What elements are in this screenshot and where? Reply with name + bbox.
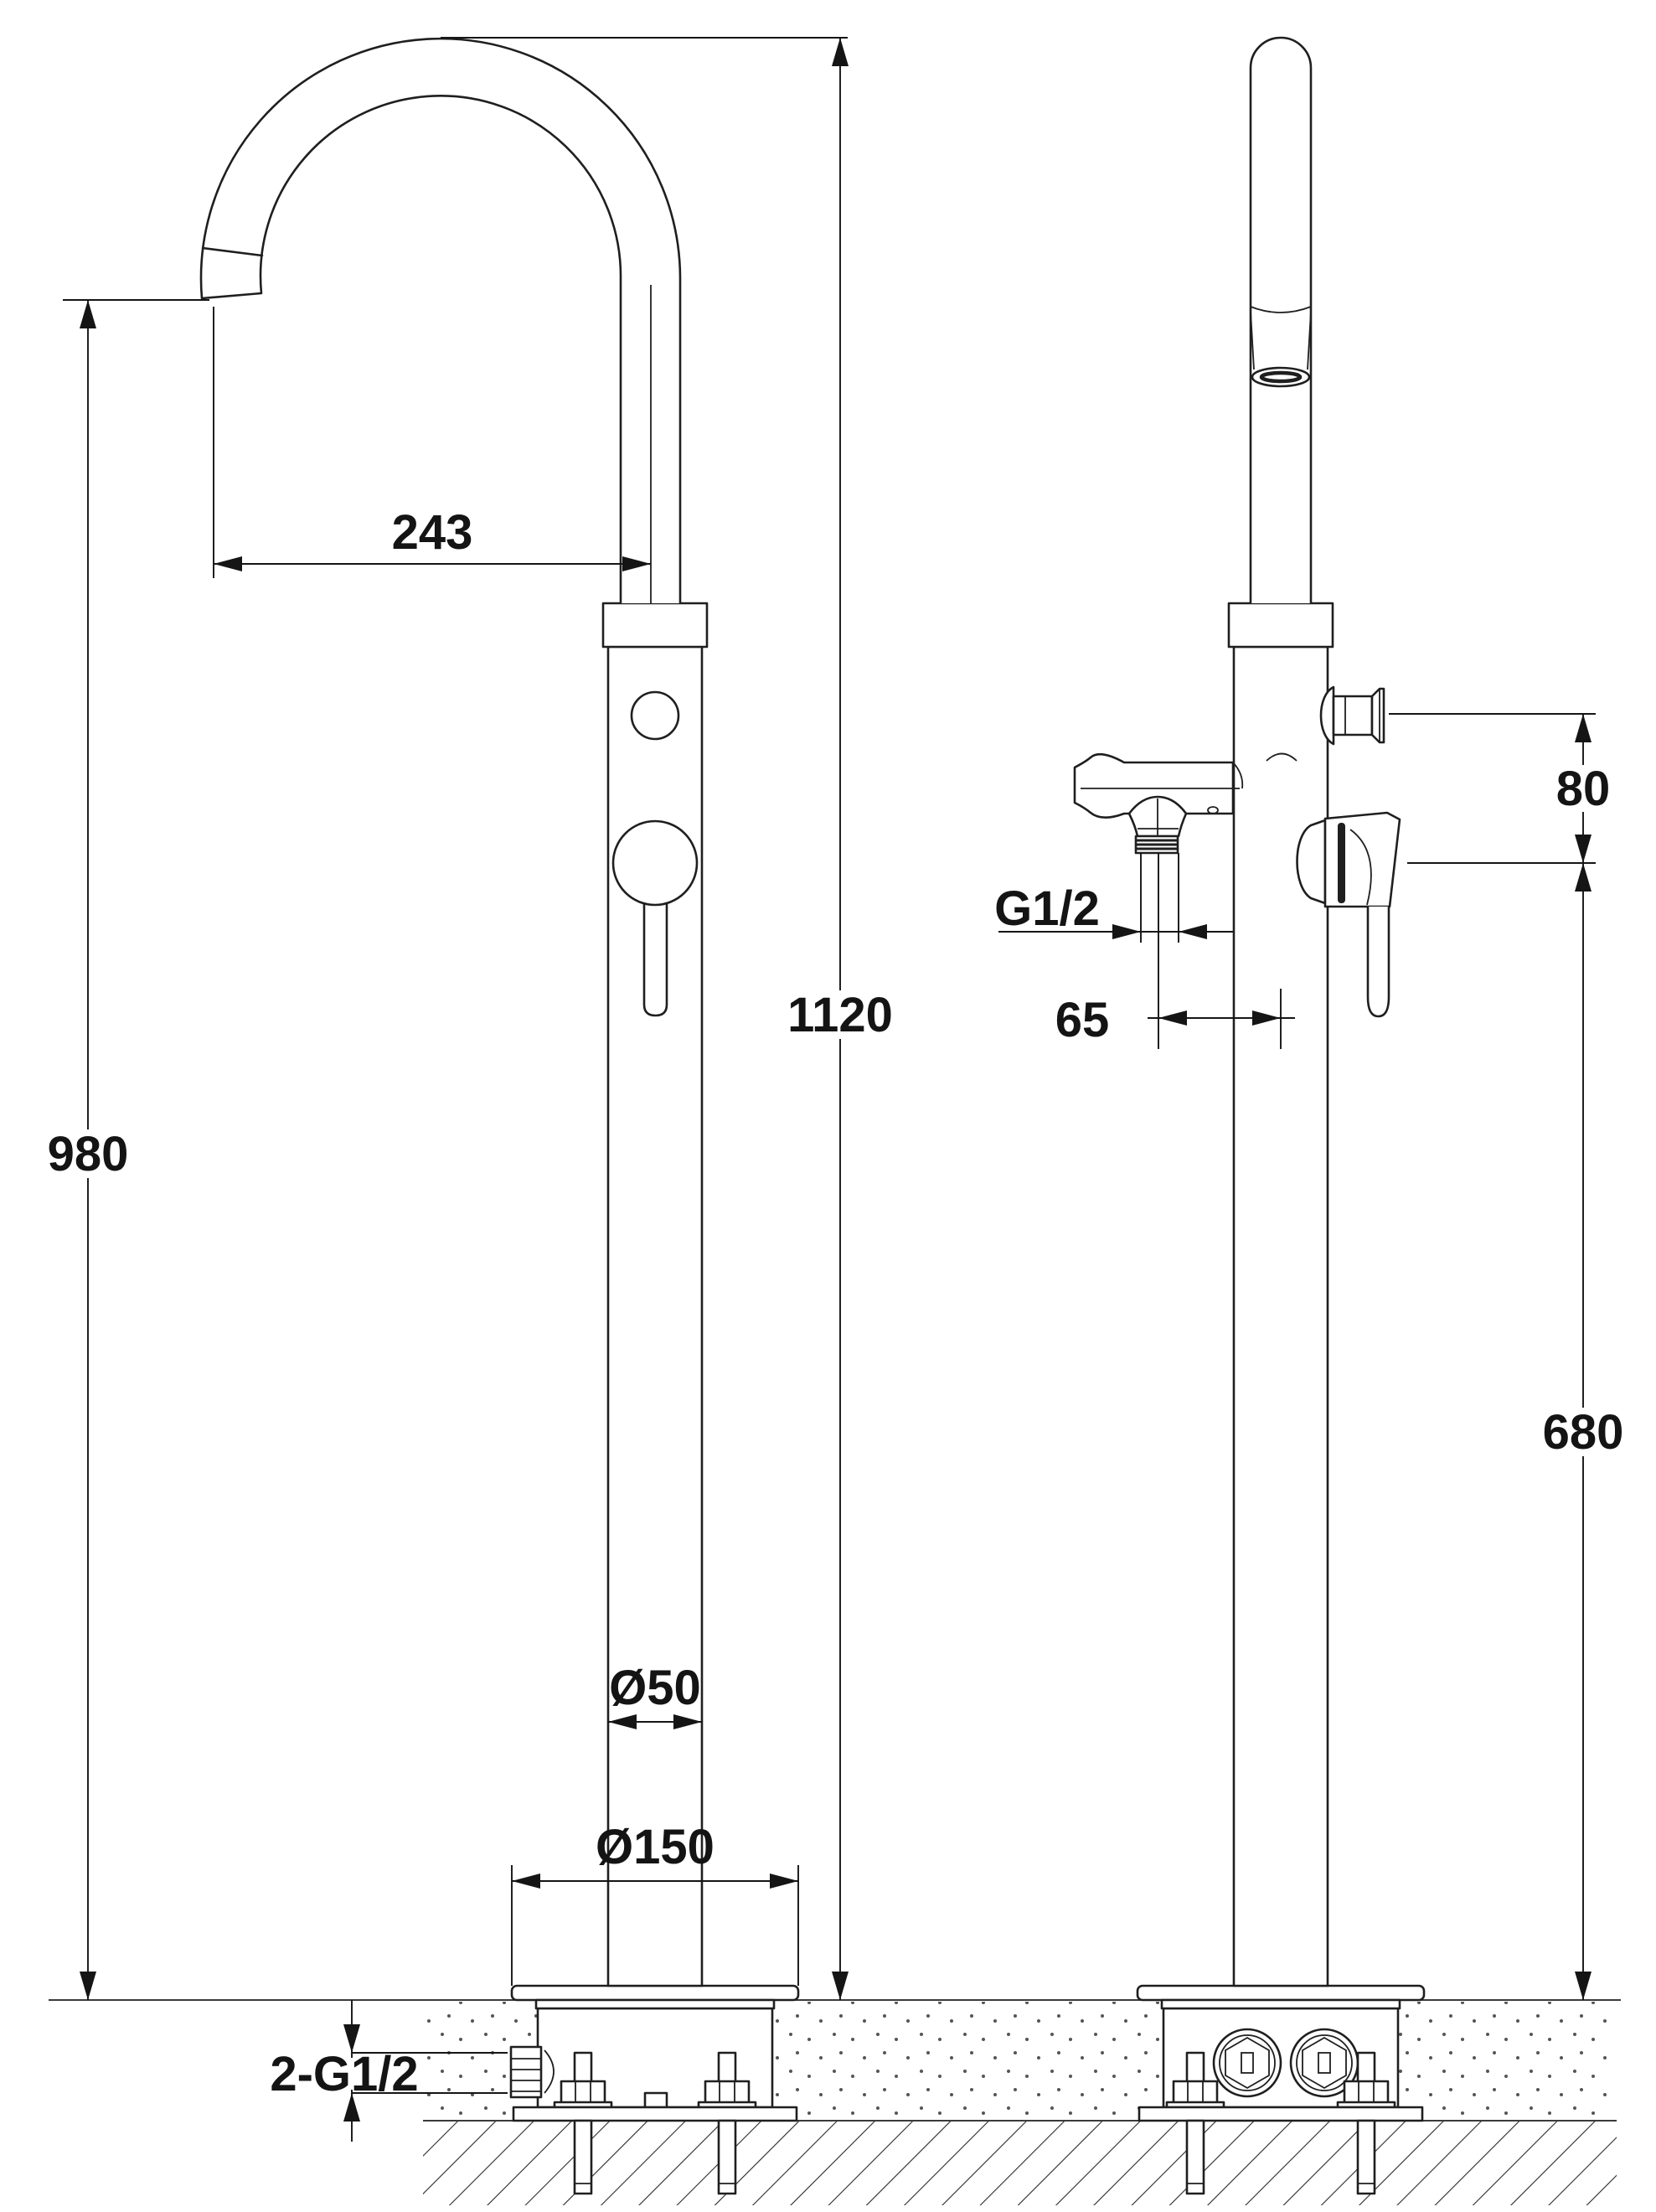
column-collar — [1229, 603, 1333, 647]
dim-label-d50: Ø50 — [609, 1661, 701, 1715]
diverter-knob-side — [1321, 687, 1384, 744]
inlet-fitting — [511, 2047, 541, 2097]
base-plate-lip — [536, 2000, 774, 2008]
handle-slot — [1338, 823, 1345, 903]
mixer-handle-front — [613, 821, 697, 905]
handle-lever-rod — [1368, 907, 1389, 1016]
front-view — [201, 39, 798, 2008]
arrowhead — [770, 1873, 798, 1889]
arrowhead — [80, 1972, 96, 2000]
dimension-spout-outlet-height: 980 — [39, 300, 209, 2000]
arrowhead — [512, 1873, 540, 1889]
stud-below-plate — [1187, 2121, 1204, 2194]
side-view — [1075, 38, 1424, 2008]
arrowhead — [1575, 835, 1592, 863]
arrowhead — [214, 556, 242, 571]
arrowhead — [1179, 924, 1207, 939]
base-plate-lip — [1162, 2000, 1400, 2008]
hatched-ground-band — [423, 2122, 1617, 2205]
dimension-handshower-thread: G1/2 — [994, 853, 1233, 943]
dimension-spout-reach: 243 — [214, 307, 651, 578]
stud-below-plate — [575, 2121, 591, 2194]
stud-below-plate — [719, 2121, 735, 2194]
box-tab — [645, 2093, 667, 2107]
arrowhead — [832, 38, 849, 66]
arrowhead — [1575, 863, 1592, 892]
dim-label-680: 680 — [1543, 1405, 1624, 1460]
knob-cap — [1372, 689, 1384, 742]
arrowhead — [1575, 1972, 1592, 2000]
anchor-plate — [513, 2107, 797, 2121]
dim-label-g12: G1/2 — [994, 881, 1100, 936]
drawing-canvas: 243 980 1120 Ø50 — [0, 0, 1656, 2212]
knob-barrel — [1334, 696, 1372, 735]
arrowhead — [1575, 714, 1592, 742]
dim-label-1120: 1120 — [787, 988, 893, 1042]
column-collar — [603, 603, 707, 647]
anchor-plate — [1139, 2107, 1422, 2121]
dim-label-980: 980 — [48, 1127, 129, 1181]
arrowhead — [1158, 1010, 1187, 1026]
arrowhead — [832, 1972, 849, 2000]
handle-body — [1325, 813, 1400, 907]
hex-plug — [1214, 2029, 1281, 2096]
dimension-knob-handle-offset: 80 — [1389, 714, 1615, 863]
stud-below-plate — [1358, 2121, 1375, 2194]
faucet-dimension-drawing: 243 980 1120 Ø50 — [0, 0, 1656, 2212]
dimensions: 243 980 1120 Ø50 — [39, 38, 1630, 2142]
diverter-knob-front — [632, 692, 678, 739]
dim-label-2g12: 2-G1/2 — [270, 2047, 418, 2101]
dim-label-d150: Ø150 — [596, 1820, 715, 1874]
dimension-handshower-height: 680 — [1536, 863, 1630, 2000]
dim-label-65: 65 — [1055, 993, 1110, 1047]
dim-label-80: 80 — [1556, 762, 1611, 816]
base-plate — [512, 1986, 798, 2000]
base-plate — [1138, 1986, 1424, 2000]
dim-label-243: 243 — [392, 505, 473, 560]
spout-riser-side — [1251, 38, 1311, 603]
arrowhead — [80, 300, 96, 328]
arrowhead — [1112, 924, 1141, 939]
